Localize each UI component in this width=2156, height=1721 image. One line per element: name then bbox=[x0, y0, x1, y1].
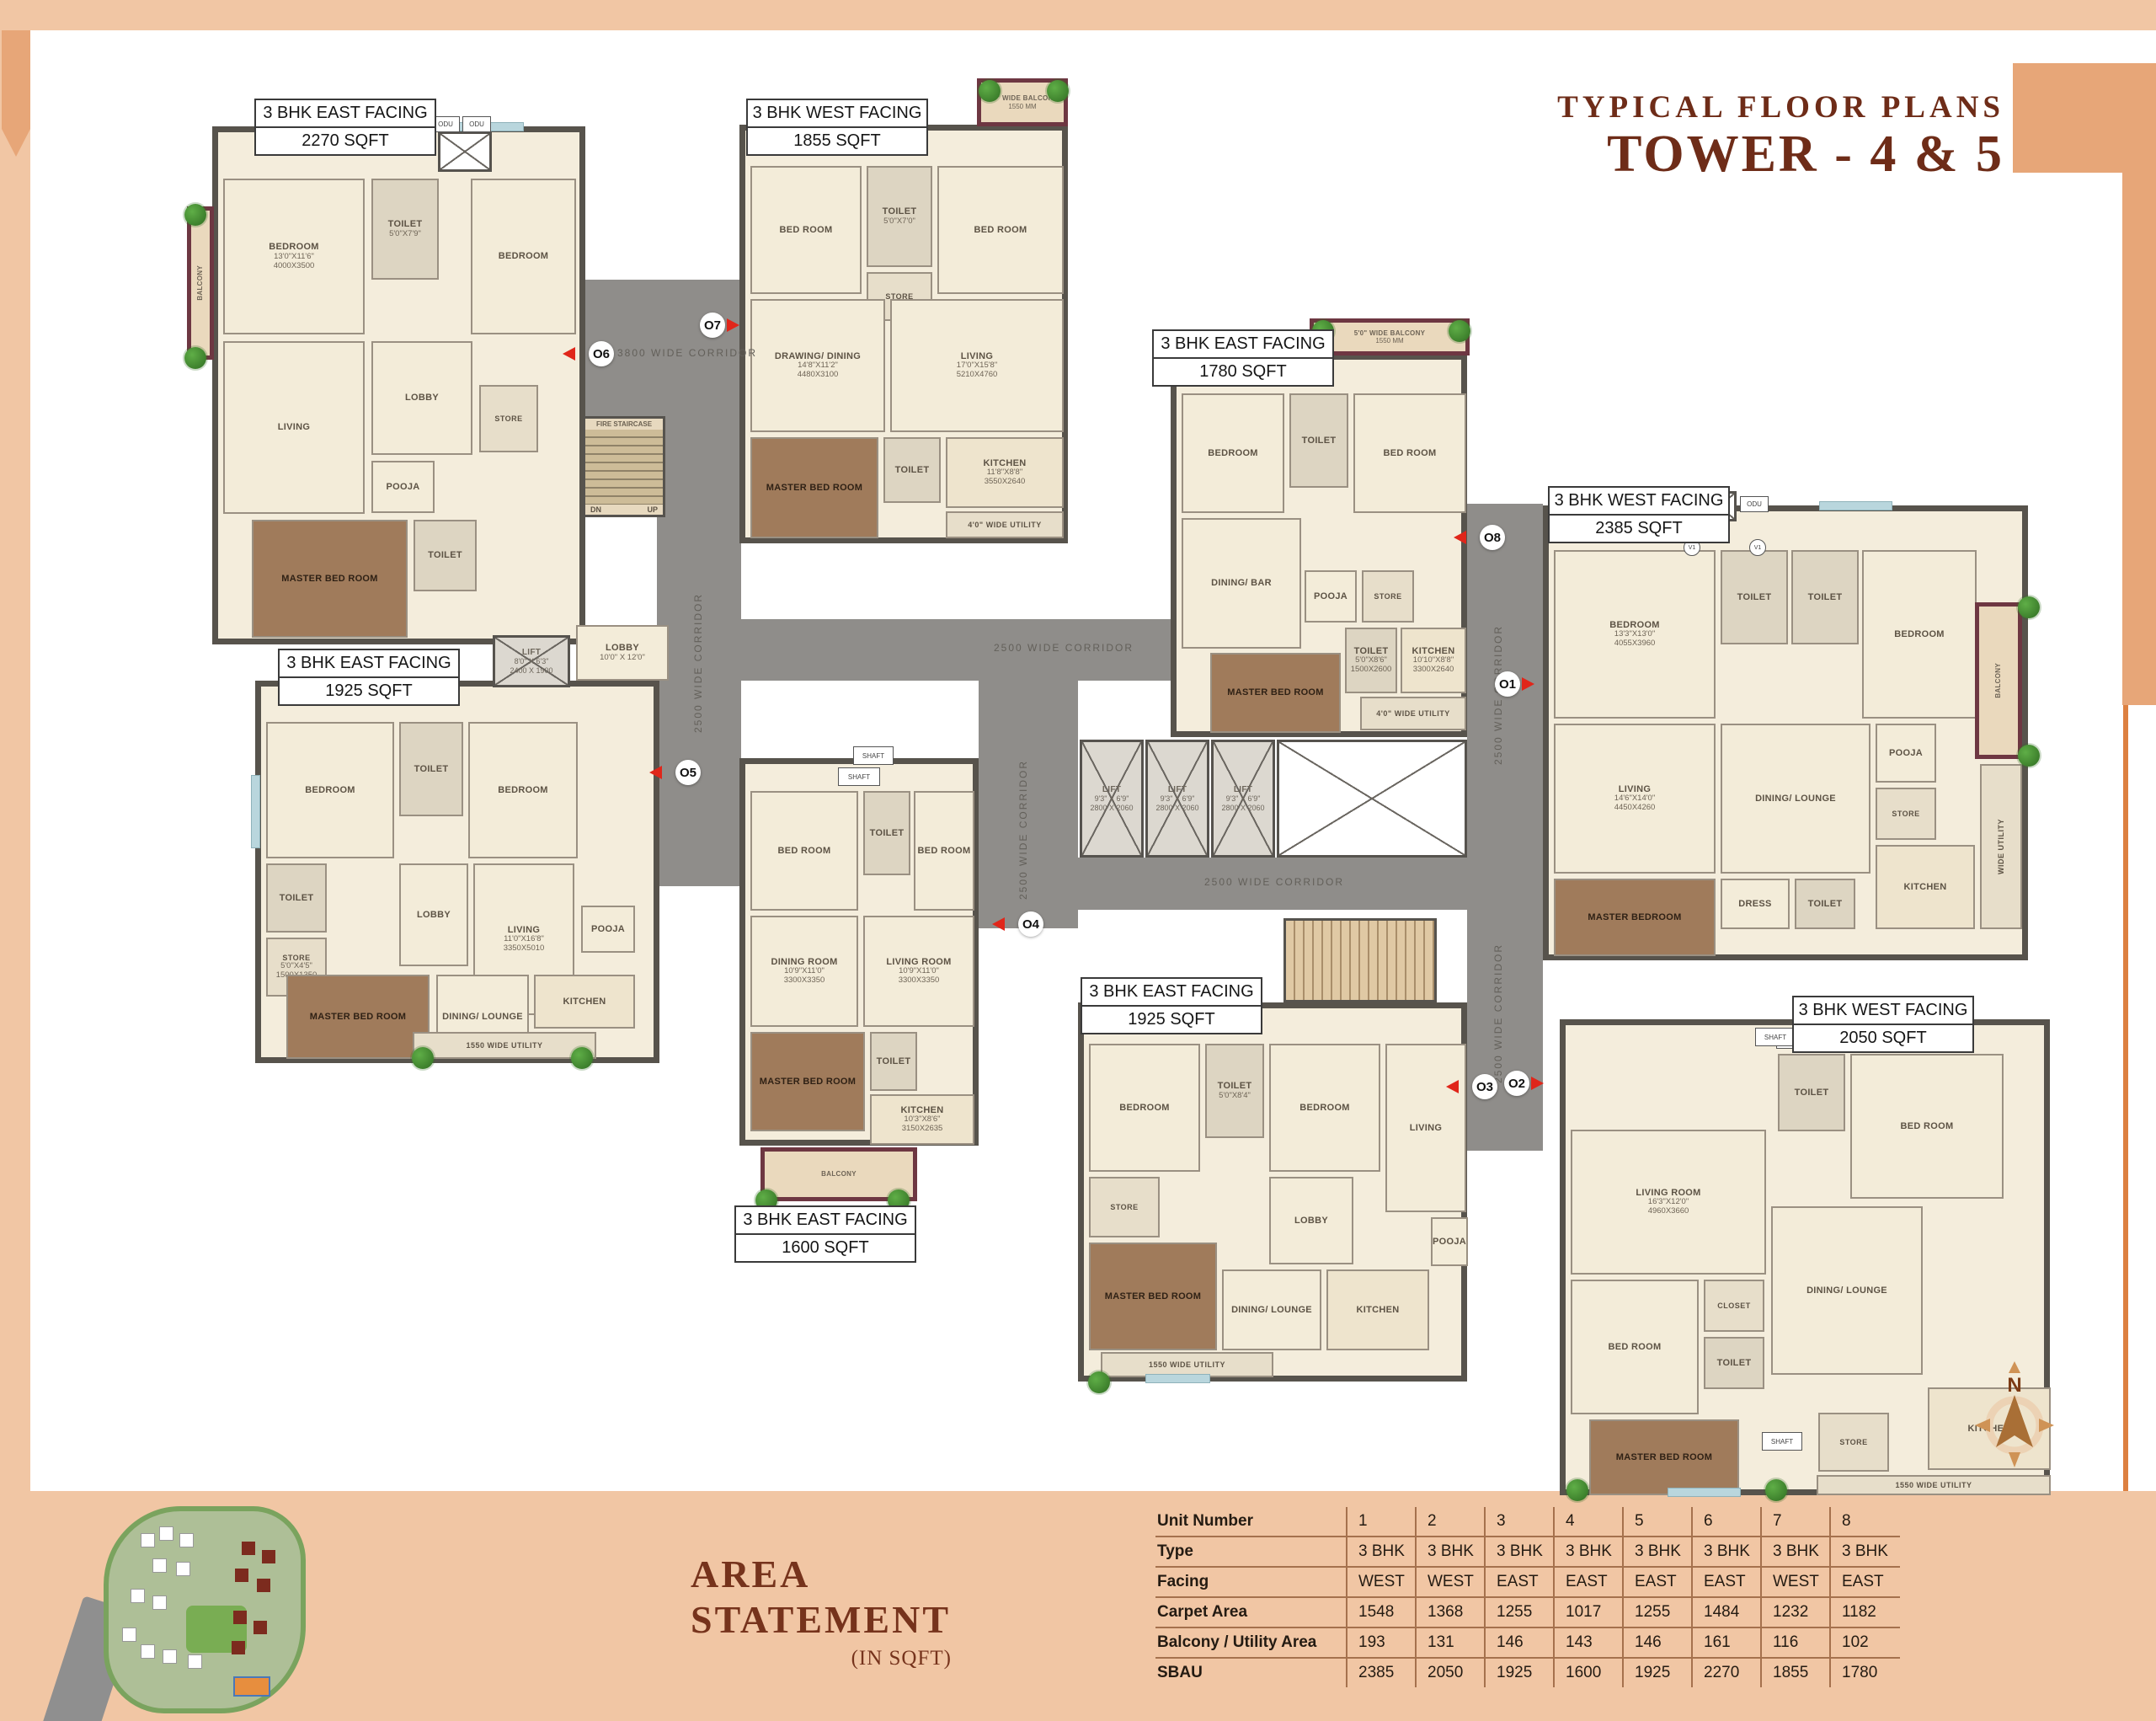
area-table-row-label: SBAU bbox=[1155, 1659, 1346, 1687]
room-master-bedroom: MASTER BED ROOM bbox=[1210, 653, 1341, 733]
unit-marker-2: O2 bbox=[1504, 1071, 1529, 1096]
unit-marker-8: O8 bbox=[1480, 525, 1505, 550]
area-table-row: FacingWESTWESTEASTEASTEASTEASTWESTEAST bbox=[1155, 1568, 1900, 1598]
room-living: LIVING bbox=[1385, 1044, 1466, 1212]
area-statement-title: AREA STATEMENT (IN SQFT) bbox=[691, 1552, 952, 1670]
plant-icon bbox=[1449, 320, 1470, 342]
room-toilet: TOILET 5'0"X7'9" bbox=[371, 179, 439, 280]
fire-staircase: FIRE STAIRCASE DN UP bbox=[583, 416, 665, 517]
plan-label-unit-6: 3 BHK EAST FACING 2270 SQFT bbox=[254, 99, 436, 156]
room-bedroom: BEDROOM bbox=[468, 722, 578, 858]
plant-icon bbox=[1088, 1371, 1110, 1393]
site-building-highlight bbox=[235, 1569, 248, 1582]
plant-icon bbox=[2018, 596, 2040, 618]
top-band bbox=[0, 0, 2156, 30]
area-table-cell: 7 bbox=[1760, 1507, 1829, 1536]
room-dining-bar: DINING/ BAR bbox=[1182, 518, 1301, 649]
area-table-cell: 1368 bbox=[1415, 1598, 1484, 1627]
shaft-box bbox=[438, 131, 492, 172]
stair-up-label: UP bbox=[647, 505, 658, 514]
room-living: LIVING 14'6"X14'0" 4450X4260 bbox=[1554, 724, 1716, 874]
shaft-tag: SHAFT bbox=[1755, 1028, 1796, 1046]
plan-label-unit-8: 3 BHK EAST FACING 1780 SQFT bbox=[1152, 329, 1334, 387]
room-store: STORE bbox=[1089, 1177, 1160, 1237]
corridor bbox=[1467, 504, 1543, 1151]
area-table-cell: 3 BHK bbox=[1691, 1537, 1760, 1566]
plan-label-unit-1: 3 BHK WEST FACING 2385 SQFT bbox=[1548, 486, 1730, 543]
room-pooja: POOJA bbox=[1305, 570, 1357, 623]
site-building-highlight bbox=[257, 1579, 270, 1592]
area-table-cell: 3 BHK bbox=[1346, 1537, 1415, 1566]
area-table-cell: 1484 bbox=[1691, 1598, 1760, 1627]
site-building bbox=[159, 1526, 173, 1541]
room-drawing-dining: DRAWING/ DINING 14'8"X11'2" 4480X3100 bbox=[750, 299, 885, 432]
room-kitchen: KITCHEN 11'8"X8'8" 3550X2640 bbox=[946, 437, 1064, 508]
site-building bbox=[176, 1562, 190, 1576]
site-building bbox=[179, 1533, 194, 1547]
area-table-cell: 1255 bbox=[1484, 1598, 1553, 1627]
room-bedroom: BED ROOM bbox=[1850, 1054, 2004, 1199]
room-utility: 1550 WIDE UTILITY bbox=[413, 1032, 596, 1059]
area-table-cell: 193 bbox=[1346, 1628, 1415, 1657]
room-toilet: TOILET bbox=[1795, 879, 1855, 929]
room-dining-lounge: DINING/ LOUNGE bbox=[1222, 1269, 1321, 1350]
unit-plan-7: BED ROOM TOILET 5'0"X7'0" BED ROOM STORE… bbox=[739, 125, 1068, 543]
area-table-cell: 5 bbox=[1622, 1507, 1691, 1536]
plan-label-unit-2: 3 BHK WEST FACING 2050 SQFT bbox=[1792, 996, 1974, 1053]
room-utility: 1550 WIDE UTILITY bbox=[1817, 1475, 2051, 1495]
entry-arrow bbox=[649, 766, 662, 779]
staircase bbox=[1283, 918, 1437, 1002]
window bbox=[1145, 1374, 1210, 1383]
area-table-cell: EAST bbox=[1829, 1568, 1898, 1596]
room-bedroom: BEDROOM bbox=[1269, 1044, 1380, 1172]
area-table-row: Balcony / Utility Area193131146143146161… bbox=[1155, 1628, 1900, 1659]
north-compass-icon: N bbox=[1968, 1358, 2061, 1476]
plant-icon bbox=[2018, 745, 2040, 767]
site-building-highlight bbox=[242, 1542, 255, 1555]
room-lobby: LOBBY bbox=[1269, 1177, 1353, 1264]
area-table-cell: 146 bbox=[1622, 1628, 1691, 1657]
area-table-cell: 1855 bbox=[1760, 1659, 1829, 1687]
unit-marker-7: O7 bbox=[700, 313, 725, 338]
room-bedroom: BED ROOM bbox=[1571, 1280, 1699, 1414]
room-bedroom: BED ROOM bbox=[1353, 393, 1466, 513]
area-table-row: Type3 BHK3 BHK3 BHK3 BHK3 BHK3 BHK3 BHK3… bbox=[1155, 1537, 1900, 1568]
lift-shaft: LIFT 8'0" X 6'3" 2400 X 1900 bbox=[493, 635, 570, 687]
room-kitchen: KITCHEN bbox=[1876, 845, 1975, 929]
area-table-cell: 1600 bbox=[1553, 1659, 1622, 1687]
entry-arrow bbox=[1454, 531, 1466, 544]
room-toilet: TOILET bbox=[414, 520, 477, 591]
site-building bbox=[122, 1627, 136, 1642]
right-line-decor bbox=[2123, 705, 2128, 1491]
unit-plan-5: BEDROOM TOILET BEDROOM LIVING 11'0"X16'8… bbox=[255, 681, 659, 1063]
room-dress: DRESS bbox=[1721, 879, 1790, 929]
service-shaft bbox=[1277, 740, 1467, 858]
room-pooja: POOJA bbox=[1431, 1217, 1468, 1266]
unit-marker-5: O5 bbox=[675, 760, 701, 785]
room-bedroom: BEDROOM bbox=[1862, 550, 1977, 719]
odu-tag: ODU bbox=[1740, 496, 1769, 512]
plant-icon bbox=[979, 80, 1001, 102]
entry-arrow bbox=[992, 917, 1005, 931]
corridor-label: 2500 WIDE CORRIDOR bbox=[1204, 876, 1344, 888]
room-living: LIVING 17'0"X15'8" 5210X4760 bbox=[890, 299, 1064, 432]
unit-marker-6: O6 bbox=[589, 341, 614, 366]
area-table-cell: 1 bbox=[1346, 1507, 1415, 1536]
area-table-cell: EAST bbox=[1622, 1568, 1691, 1596]
plant-icon bbox=[571, 1047, 593, 1069]
shaft-tag: SHAFT bbox=[838, 767, 880, 786]
room-toilet: TOILET bbox=[1721, 550, 1788, 644]
area-table-cell: 3 BHK bbox=[1760, 1537, 1829, 1566]
window bbox=[1819, 501, 1892, 510]
room-pooja: POOJA bbox=[581, 906, 635, 953]
area-table-cell: 3 BHK bbox=[1622, 1537, 1691, 1566]
plan-label-unit-7: 3 BHK WEST FACING 1855 SQFT bbox=[746, 99, 928, 156]
lift-shaft: LIFT 9'3" X 6'9" 2800 X 2060 bbox=[1145, 740, 1209, 858]
area-table-cell: 6 bbox=[1691, 1507, 1760, 1536]
unit-marker-3: O3 bbox=[1472, 1074, 1497, 1099]
area-table-cell: 2385 bbox=[1346, 1659, 1415, 1687]
window bbox=[1668, 1488, 1741, 1497]
plan-label-unit-5: 3 BHK EAST FACING 1925 SQFT bbox=[278, 649, 460, 706]
room-utility: 4'0" WIDE UTILITY bbox=[946, 511, 1064, 538]
area-table-cell: 2270 bbox=[1691, 1659, 1760, 1687]
room-bedroom: BED ROOM bbox=[750, 791, 858, 911]
entry-arrow bbox=[1522, 677, 1534, 691]
area-table-cell: EAST bbox=[1553, 1568, 1622, 1596]
plant-icon bbox=[1047, 80, 1069, 102]
area-table-cell: 3 BHK bbox=[1553, 1537, 1622, 1566]
area-table-cell: 1017 bbox=[1553, 1598, 1622, 1627]
left-band bbox=[0, 0, 30, 1721]
compass-n-label: N bbox=[2007, 1374, 2021, 1397]
plan-label-unit-3: 3 BHK EAST FACING 1925 SQFT bbox=[1081, 977, 1262, 1034]
room-living: LIVING ROOM 16'3"X12'0" 4960X3660 bbox=[1571, 1130, 1766, 1275]
site-building-highlight bbox=[232, 1641, 245, 1654]
right-strip-decor bbox=[2122, 63, 2156, 705]
area-table-cell: 1255 bbox=[1622, 1598, 1691, 1627]
area-table-cell: EAST bbox=[1691, 1568, 1760, 1596]
entry-arrow bbox=[1446, 1080, 1459, 1093]
area-table-row-label: Facing bbox=[1155, 1568, 1346, 1596]
room-master-bedroom: MASTER BED ROOM bbox=[750, 437, 878, 538]
balcony: BALCONY bbox=[187, 206, 214, 360]
shaft-tag: SHAFT bbox=[1762, 1432, 1802, 1451]
area-table-cell: 1232 bbox=[1760, 1598, 1829, 1627]
room-bedroom: BEDROOM bbox=[1089, 1044, 1200, 1172]
plan-label-unit-4: 3 BHK EAST FACING 1600 SQFT bbox=[734, 1205, 916, 1263]
room-bedroom: BED ROOM bbox=[937, 166, 1064, 294]
room-toilet: TOILET 5'0"X7'0" bbox=[867, 166, 932, 267]
room-master-bedroom: MASTER BED ROOM bbox=[1089, 1243, 1217, 1350]
area-table-cell: 102 bbox=[1829, 1628, 1898, 1657]
area-table-cell: 1182 bbox=[1829, 1598, 1898, 1627]
site-plan-thumbnail bbox=[63, 1501, 303, 1713]
corridor-label: 3800 WIDE CORRIDOR bbox=[617, 347, 757, 359]
area-table-cell: 131 bbox=[1415, 1628, 1484, 1657]
room-dining-lounge: DINING/ LOUNGE bbox=[1771, 1206, 1923, 1375]
corridor-label: 2500 WIDE CORRIDOR bbox=[692, 531, 704, 733]
room-store: STORE bbox=[479, 385, 538, 452]
site-building bbox=[152, 1558, 167, 1573]
area-table-row-label: Unit Number bbox=[1155, 1507, 1346, 1536]
room-dining-lounge: DINING/ LOUNGE bbox=[1721, 724, 1870, 874]
page-title: TYPICAL FLOOR PLANS bbox=[1364, 89, 2004, 126]
room-toilet: TOILET bbox=[1791, 550, 1859, 644]
stair-treads bbox=[1286, 921, 1434, 1000]
shaft-tag: SHAFT bbox=[853, 746, 894, 765]
room-toilet: TOILET bbox=[1704, 1337, 1764, 1389]
area-table-cell: 3 bbox=[1484, 1507, 1553, 1536]
room-toilet: TOILET 5'0"X8'4" bbox=[1205, 1044, 1264, 1138]
corridor-label: 2500 WIDE CORRIDOR bbox=[994, 642, 1134, 654]
area-table-cell: 1780 bbox=[1829, 1659, 1898, 1687]
lift-shaft: LIFT 9'3" X 6'9" 2800 X 2060 bbox=[1080, 740, 1144, 858]
area-table-cell: 146 bbox=[1484, 1628, 1553, 1657]
room-toilet: TOILET bbox=[266, 863, 327, 933]
area-table-cell: EAST bbox=[1484, 1568, 1553, 1596]
v1-tag: V1 bbox=[1749, 539, 1766, 556]
room-store: STORE bbox=[1362, 570, 1414, 623]
room-bedroom: BEDROOM bbox=[266, 722, 394, 858]
corridor-label: 2500 WIDE CORRIDOR bbox=[1492, 923, 1504, 1083]
room-bedroom: BED ROOM bbox=[914, 791, 974, 911]
unit-plan-8: BEDROOM TOILET BED ROOM DINING/ BAR POOJ… bbox=[1171, 354, 1467, 737]
entry-arrow bbox=[1531, 1077, 1544, 1090]
room-living: LIVING bbox=[223, 341, 365, 514]
unit-marker-1: O1 bbox=[1495, 671, 1520, 697]
room-living: LIVING ROOM 10'9"X11'0" 3300X3350 bbox=[863, 916, 974, 1027]
room-kitchen: KITCHEN 10'10"X8'8" 3300X2640 bbox=[1401, 628, 1466, 693]
site-pool bbox=[233, 1676, 270, 1697]
room-bedroom: BED ROOM bbox=[750, 166, 862, 294]
area-table-cell: 116 bbox=[1760, 1628, 1829, 1657]
room-bedroom: BEDROOM 13'3"X13'0" 4055X3960 bbox=[1554, 550, 1716, 719]
area-table-row-label: Balcony / Utility Area bbox=[1155, 1628, 1346, 1657]
room-closet: CLOSET bbox=[1704, 1280, 1764, 1332]
area-table-cell: 4 bbox=[1553, 1507, 1622, 1536]
room-lobby: LOBBY 10'0" X 12'0" bbox=[576, 625, 669, 681]
room-master-bedroom: MASTER BED ROOM bbox=[252, 520, 408, 638]
area-table-row: SBAU23852050192516001925227018551780 bbox=[1155, 1659, 1900, 1687]
room-toilet: TOILET 5'0"X8'6" 1500X2600 bbox=[1345, 628, 1397, 693]
plant-icon bbox=[1765, 1479, 1787, 1501]
site-building-highlight bbox=[233, 1611, 247, 1624]
room-dining: DINING ROOM 10'9"X11'0" 3300X3350 bbox=[750, 916, 858, 1027]
room-bedroom: BEDROOM bbox=[1182, 393, 1284, 513]
brochure-page: TYPICAL FLOOR PLANS TOWER - 4 & 5 3800 W… bbox=[0, 0, 2156, 1721]
room-store: STORE bbox=[1876, 788, 1936, 840]
area-table-cell: 3 BHK bbox=[1829, 1537, 1898, 1566]
area-table-cell: 161 bbox=[1691, 1628, 1760, 1657]
room-store: STORE bbox=[1818, 1413, 1889, 1472]
area-table-cell: 1925 bbox=[1484, 1659, 1553, 1687]
lift-shaft: LIFT 9'3" X 6'9" 2800 X 2060 bbox=[1211, 740, 1275, 858]
area-table-cell: 2 bbox=[1415, 1507, 1484, 1536]
plant-icon bbox=[1566, 1479, 1588, 1501]
area-table-cell: 3 BHK bbox=[1484, 1537, 1553, 1566]
site-building bbox=[141, 1533, 155, 1547]
room-toilet: TOILET bbox=[1289, 393, 1348, 488]
plant-icon bbox=[184, 204, 206, 226]
unit-plan-1: BEDROOM 13'3"X13'0" 4055X3960 TOILET TOI… bbox=[1543, 505, 2028, 960]
area-table-cell: 8 bbox=[1829, 1507, 1898, 1536]
site-building-highlight bbox=[253, 1621, 267, 1634]
area-table-row-label: Type bbox=[1155, 1537, 1346, 1566]
room-pooja: POOJA bbox=[371, 461, 435, 513]
unit-plan-6: BEDROOM 13'0"X11'6" 4000X3500 TOILET 5'0… bbox=[212, 126, 585, 644]
tower-title: TOWER - 4 & 5 bbox=[1364, 125, 2004, 184]
room-toilet: TOILET bbox=[863, 791, 910, 875]
room-bedroom: BEDROOM bbox=[471, 179, 576, 334]
site-building bbox=[188, 1654, 202, 1669]
room-toilet: TOILET bbox=[1778, 1054, 1845, 1131]
area-table-cell: 1548 bbox=[1346, 1598, 1415, 1627]
site-building bbox=[131, 1589, 145, 1603]
plant-icon bbox=[184, 347, 206, 369]
area-table-cell: WEST bbox=[1415, 1568, 1484, 1596]
site-landscape bbox=[104, 1506, 306, 1713]
area-table-cell: WEST bbox=[1346, 1568, 1415, 1596]
room-lobby: LOBBY bbox=[399, 863, 468, 966]
area-table-cell: 143 bbox=[1553, 1628, 1622, 1657]
room-toilet: TOILET bbox=[883, 437, 941, 503]
area-table-cell: WEST bbox=[1760, 1568, 1829, 1596]
area-table-cell: 2050 bbox=[1415, 1659, 1484, 1687]
room-kitchen: KITCHEN bbox=[534, 975, 635, 1029]
plant-icon bbox=[412, 1047, 434, 1069]
site-building bbox=[152, 1595, 167, 1610]
area-table-cell: 3 BHK bbox=[1415, 1537, 1484, 1566]
stair-treads bbox=[585, 430, 663, 505]
window bbox=[251, 775, 260, 848]
room-pooja: POOJA bbox=[1876, 724, 1936, 783]
entry-arrow bbox=[563, 347, 575, 361]
room-bedroom: BEDROOM 13'0"X11'6" 4000X3500 bbox=[223, 179, 365, 334]
room-master-bedroom: MASTER BEDROOM bbox=[1554, 879, 1716, 956]
room-toilet: TOILET bbox=[399, 722, 463, 816]
area-table-row-label: Carpet Area bbox=[1155, 1598, 1346, 1627]
corridor-label: 2500 WIDE CORRIDOR bbox=[1017, 731, 1029, 900]
area-statement-table: Unit Number12345678Type3 BHK3 BHK3 BHK3 … bbox=[1155, 1507, 1900, 1687]
balcony: BALCONY bbox=[1975, 602, 2022, 759]
room-master-bedroom: MASTER BED ROOM bbox=[286, 975, 430, 1059]
unit-plan-3: BEDROOM TOILET 5'0"X8'4" BEDROOM LIVING … bbox=[1078, 1002, 1467, 1382]
area-table-row: Unit Number12345678 bbox=[1155, 1507, 1900, 1537]
site-building-highlight bbox=[262, 1550, 275, 1563]
stair-dn-label: DN bbox=[590, 505, 601, 514]
room-utility: 4'0" WIDE UTILITY bbox=[1360, 697, 1466, 730]
odu-tag: ODU bbox=[462, 116, 491, 132]
room-kitchen: KITCHEN 10'3"X8'6" 3150X2635 bbox=[870, 1094, 974, 1145]
area-table-row: Carpet Area15481368125510171255148412321… bbox=[1155, 1598, 1900, 1628]
area-table-cell: 1925 bbox=[1622, 1659, 1691, 1687]
entry-arrow bbox=[727, 318, 739, 332]
site-building bbox=[163, 1649, 177, 1664]
unit-plan-4: SHAFT BED ROOM TOILET BED ROOM DINING RO… bbox=[739, 758, 979, 1146]
room-kitchen: KITCHEN bbox=[1326, 1269, 1429, 1350]
room-lobby: LOBBY bbox=[371, 341, 472, 455]
site-building bbox=[141, 1644, 155, 1659]
room-master-bedroom: MASTER BED ROOM bbox=[750, 1032, 865, 1131]
room-toilet: TOILET bbox=[870, 1032, 917, 1091]
room-utility: WIDE UTILITY bbox=[1980, 764, 2022, 929]
room-master-bedroom: MASTER BED ROOM bbox=[1589, 1419, 1739, 1495]
area-statement-subtitle: (IN SQFT) bbox=[691, 1647, 952, 1670]
unit-marker-4: O4 bbox=[1018, 911, 1043, 937]
